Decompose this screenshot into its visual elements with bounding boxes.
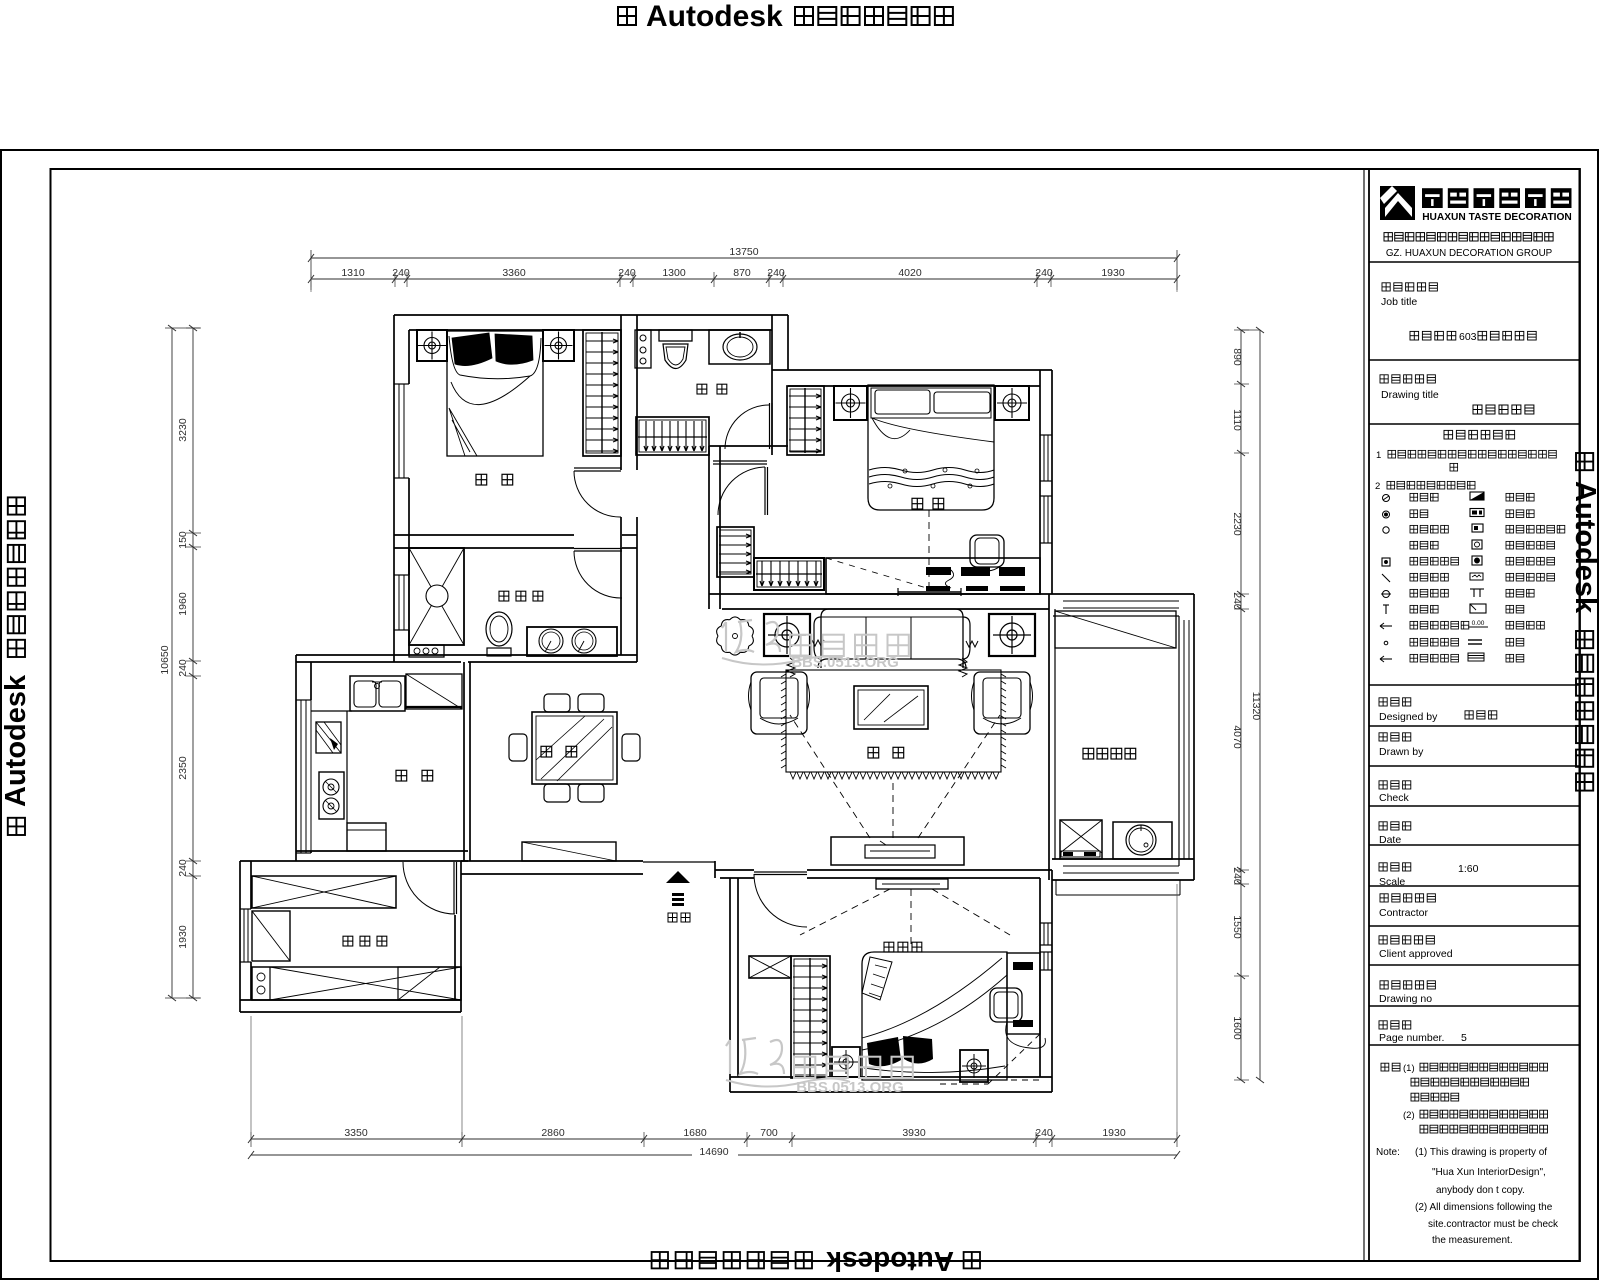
svg-text:240: 240 <box>618 267 636 279</box>
svg-text:870: 870 <box>733 267 751 279</box>
svg-text:1600: 1600 <box>1231 1016 1243 1040</box>
svg-text:3230: 3230 <box>177 418 189 442</box>
svg-text:603: 603 <box>1459 331 1477 343</box>
svg-text:Scale: Scale <box>1379 876 1405 888</box>
svg-text:HUAXUN TASTE DECORATION: HUAXUN TASTE DECORATION <box>1422 212 1572 223</box>
svg-text:240: 240 <box>1231 592 1243 610</box>
svg-text:240: 240 <box>767 267 785 279</box>
svg-text:Note:: Note: <box>1376 1147 1400 1158</box>
svg-text:BBS.0513.ORG: BBS.0513.ORG <box>791 654 899 671</box>
svg-text:Autodesk: Autodesk <box>0 674 32 807</box>
svg-text:5: 5 <box>1461 1032 1467 1044</box>
svg-text:site.contractor must be check: site.contractor must be check <box>1428 1219 1559 1230</box>
svg-text:(2) All dimensions following t: (2) All dimensions following the <box>1415 1202 1553 1213</box>
svg-text:2230: 2230 <box>1231 512 1243 536</box>
svg-text:150: 150 <box>177 531 189 549</box>
svg-text:the measurement.: the measurement. <box>1432 1235 1513 1246</box>
svg-text:Autodesk: Autodesk <box>1569 481 1600 614</box>
svg-text:1110: 1110 <box>1231 409 1243 431</box>
svg-text:2: 2 <box>1375 481 1380 492</box>
svg-text:1930: 1930 <box>1101 267 1125 279</box>
svg-text:3930: 3930 <box>902 1127 926 1139</box>
svg-text:700: 700 <box>760 1127 778 1139</box>
svg-text:Page number.: Page number. <box>1379 1032 1444 1044</box>
svg-text:4070: 4070 <box>1231 725 1243 749</box>
svg-text:10650: 10650 <box>159 645 171 674</box>
svg-text:3360: 3360 <box>502 267 526 279</box>
svg-text:1930: 1930 <box>177 925 189 949</box>
svg-text:11320: 11320 <box>1250 692 1262 721</box>
svg-text:240: 240 <box>177 659 189 677</box>
svg-text:3350: 3350 <box>344 1127 368 1139</box>
svg-text:1960: 1960 <box>177 592 189 616</box>
svg-text:890: 890 <box>1231 348 1243 366</box>
svg-text:(2): (2) <box>1403 1110 1415 1121</box>
svg-text:240: 240 <box>177 859 189 877</box>
svg-text:(1) This drawing is property o: (1) This drawing is property of <box>1415 1147 1547 1158</box>
svg-text:1:60: 1:60 <box>1458 863 1479 875</box>
svg-text:240: 240 <box>392 267 410 279</box>
svg-text:Date: Date <box>1379 834 1401 846</box>
svg-text:1930: 1930 <box>1102 1127 1126 1139</box>
svg-text:Designed by: Designed by <box>1379 711 1438 723</box>
svg-text:Check: Check <box>1379 792 1410 804</box>
svg-text:GZ. HUAXUN DECORATION GROUP: GZ. HUAXUN DECORATION GROUP <box>1386 248 1553 259</box>
svg-text:"Hua Xun InteriorDesign",: "Hua Xun InteriorDesign", <box>1432 1167 1546 1178</box>
svg-text:240: 240 <box>1231 867 1243 885</box>
svg-text:Job title: Job title <box>1381 296 1417 308</box>
svg-text:0.00: 0.00 <box>1472 620 1485 627</box>
svg-text:1: 1 <box>1376 450 1381 461</box>
svg-text:Contractor: Contractor <box>1379 907 1429 919</box>
svg-text:2350: 2350 <box>177 756 189 780</box>
svg-text:Autodesk: Autodesk <box>646 0 783 33</box>
svg-text:14690: 14690 <box>699 1146 728 1158</box>
svg-text:Drawn by: Drawn by <box>1379 746 1424 758</box>
svg-text:240: 240 <box>1035 267 1053 279</box>
svg-text:1680: 1680 <box>683 1127 707 1139</box>
svg-text:13750: 13750 <box>729 246 758 258</box>
svg-text:1310: 1310 <box>341 267 365 279</box>
svg-text:240: 240 <box>1035 1127 1053 1139</box>
svg-text:Drawing no: Drawing no <box>1379 993 1432 1005</box>
svg-text:anybody don t copy.: anybody don t copy. <box>1436 1185 1525 1196</box>
svg-text:(1): (1) <box>1403 1063 1415 1074</box>
svg-text:Client approved: Client approved <box>1379 948 1453 960</box>
svg-text:Autodesk: Autodesk <box>826 1246 954 1277</box>
svg-text:2860: 2860 <box>541 1127 565 1139</box>
svg-text:1300: 1300 <box>662 267 686 279</box>
svg-text:1550: 1550 <box>1231 915 1243 939</box>
svg-text:Drawing title: Drawing title <box>1381 389 1439 401</box>
svg-text:4020: 4020 <box>898 267 922 279</box>
